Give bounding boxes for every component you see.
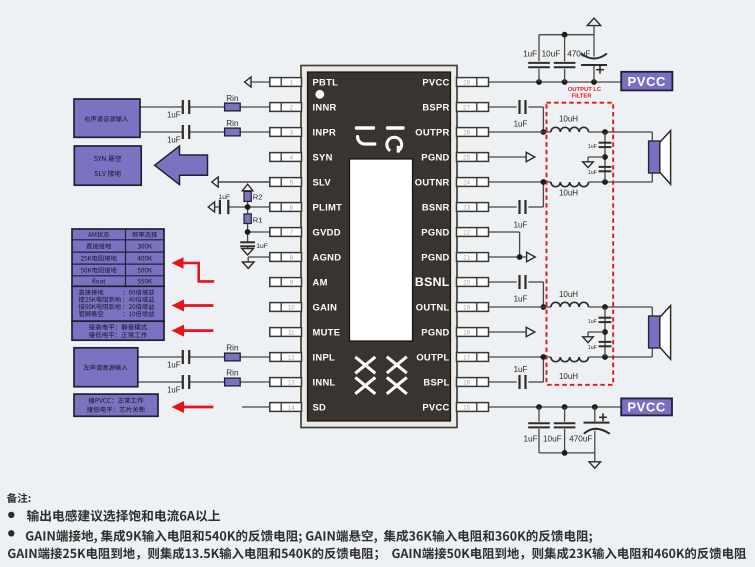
svg-text:PVCC: PVCC xyxy=(627,400,666,415)
svg-text:MUTE: MUTE xyxy=(313,326,341,337)
svg-text:14: 14 xyxy=(288,404,295,411)
svg-text:BSPL: BSPL xyxy=(423,376,449,387)
svg-text:GVDD: GVDD xyxy=(313,226,341,237)
svg-text:1uF: 1uF xyxy=(588,345,598,351)
svg-text:23: 23 xyxy=(463,204,470,211)
svg-text:1uF: 1uF xyxy=(588,319,598,325)
svg-text:PGND: PGND xyxy=(421,326,449,337)
svg-text:1uF: 1uF xyxy=(523,435,537,444)
svg-text:OUTNL: OUTNL xyxy=(416,301,450,312)
svg-text:1uF: 1uF xyxy=(218,194,230,201)
svg-text:10uH: 10uH xyxy=(559,290,578,299)
svg-text:26: 26 xyxy=(463,129,470,136)
svg-text:INNL: INNL xyxy=(313,376,336,387)
svg-text:INPR: INPR xyxy=(313,126,337,137)
svg-text:27: 27 xyxy=(463,104,470,111)
svg-text:INPL: INPL xyxy=(313,351,336,362)
svg-text:25: 25 xyxy=(463,154,470,161)
svg-text:PGND: PGND xyxy=(421,151,449,162)
svg-text:PBTL: PBTL xyxy=(313,76,339,87)
svg-text:8: 8 xyxy=(290,254,294,261)
svg-text:6: 6 xyxy=(290,204,294,211)
svg-text:SLV: SLV xyxy=(313,176,332,187)
svg-text:AGND: AGND xyxy=(313,251,342,262)
svg-text:22: 22 xyxy=(463,229,470,236)
svg-text:OUTPR: OUTPR xyxy=(415,126,449,137)
svg-text:20: 20 xyxy=(463,279,470,286)
svg-text:BSNL: BSNL xyxy=(415,275,450,289)
svg-text:16: 16 xyxy=(463,379,470,386)
svg-text:Rin: Rin xyxy=(226,344,239,353)
svg-text:9: 9 xyxy=(290,279,294,286)
svg-text:15: 15 xyxy=(463,404,470,411)
svg-text:28: 28 xyxy=(463,79,470,86)
svg-text:24: 24 xyxy=(463,179,470,186)
svg-text:1: 1 xyxy=(290,79,294,86)
svg-text:10uH: 10uH xyxy=(559,372,578,381)
svg-text:PVCC: PVCC xyxy=(422,401,449,412)
svg-text:10uF: 10uF xyxy=(543,435,562,444)
svg-text:10uH: 10uH xyxy=(559,189,578,198)
svg-text:1uF: 1uF xyxy=(514,120,528,129)
svg-text:PLIMT: PLIMT xyxy=(313,201,343,212)
svg-text:19: 19 xyxy=(463,304,470,311)
svg-text:21: 21 xyxy=(463,254,470,261)
svg-text:OUTPL: OUTPL xyxy=(416,351,449,362)
svg-text:10uH: 10uH xyxy=(559,115,578,124)
svg-text:FILTER: FILTER xyxy=(572,93,593,99)
svg-text:11: 11 xyxy=(288,329,295,336)
svg-text:PGND: PGND xyxy=(421,226,449,237)
svg-text:12: 12 xyxy=(288,354,295,361)
svg-text:4: 4 xyxy=(290,154,294,161)
svg-text:BSNR: BSNR xyxy=(422,201,450,212)
svg-text:Rin: Rin xyxy=(226,119,239,128)
svg-text:1uF: 1uF xyxy=(514,295,528,304)
svg-text:1uF: 1uF xyxy=(167,136,181,145)
svg-text:PVCC: PVCC xyxy=(422,76,449,87)
svg-text:470uF: 470uF xyxy=(567,49,590,58)
svg-text:GAIN: GAIN xyxy=(313,301,338,312)
svg-text:18: 18 xyxy=(463,329,470,336)
svg-text:Rin: Rin xyxy=(226,369,239,378)
svg-text:10: 10 xyxy=(288,304,295,311)
svg-text:17: 17 xyxy=(463,354,470,361)
svg-text:SD: SD xyxy=(313,401,327,412)
svg-text:470uF: 470uF xyxy=(569,435,592,444)
svg-text:R1: R1 xyxy=(253,216,263,225)
svg-text:OUTNR: OUTNR xyxy=(415,176,450,187)
svg-text:1uF: 1uF xyxy=(167,386,181,395)
svg-text:3: 3 xyxy=(290,129,294,136)
svg-text:BSPR: BSPR xyxy=(422,101,449,112)
svg-text:OUTPUT LC: OUTPUT LC xyxy=(568,87,602,93)
svg-text:Rin: Rin xyxy=(226,94,239,103)
svg-text:5: 5 xyxy=(290,179,294,186)
svg-text:1uF: 1uF xyxy=(256,243,268,250)
svg-text:1uF: 1uF xyxy=(588,170,598,176)
svg-text:1uF: 1uF xyxy=(523,49,537,58)
svg-text:PVCC: PVCC xyxy=(628,74,667,89)
svg-text:SYN: SYN xyxy=(313,151,333,162)
svg-text:1uF: 1uF xyxy=(514,365,528,374)
svg-text:PGND: PGND xyxy=(421,251,449,262)
svg-text:10uF: 10uF xyxy=(542,49,561,58)
svg-text:1uF: 1uF xyxy=(588,144,598,150)
svg-text:R2: R2 xyxy=(253,192,263,201)
svg-text:1uF: 1uF xyxy=(167,111,181,120)
svg-text:INNR: INNR xyxy=(313,101,337,112)
svg-text:AM: AM xyxy=(313,276,328,287)
svg-text:7: 7 xyxy=(290,229,294,236)
svg-text:1uF: 1uF xyxy=(514,220,528,229)
svg-text:1uF: 1uF xyxy=(167,361,181,370)
svg-text:2: 2 xyxy=(290,104,294,111)
svg-text:13: 13 xyxy=(288,379,295,386)
